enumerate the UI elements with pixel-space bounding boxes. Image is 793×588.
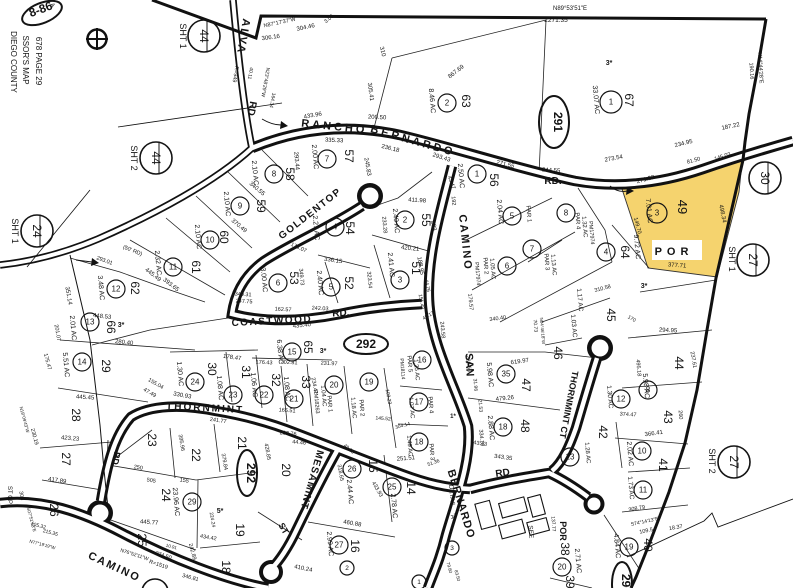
map-label: 351.14 — [63, 286, 72, 306]
map-label: 1.30 AC — [605, 385, 614, 409]
flow-arrow — [262, 119, 281, 125]
map-label: 200.76 — [279, 430, 296, 437]
map-label: 3* — [606, 60, 613, 67]
map-label: (50' RD) — [122, 244, 143, 257]
parcel-circle-number: 7 — [530, 245, 535, 254]
map-label: PAR 1 — [524, 205, 532, 223]
map-label: 44.46 — [292, 439, 306, 446]
map-label: 420.21 — [401, 245, 421, 253]
map-book-oval-number: 291 — [551, 112, 565, 132]
map-label: 395.96 — [177, 434, 186, 452]
map-label: PM17974 — [473, 262, 481, 286]
map-label: 1.03 AC — [569, 314, 578, 338]
sheet-ref-label: SHT 1 — [10, 218, 20, 243]
parcel-circle-number: 3 — [655, 209, 660, 218]
map-label: 2.00 AC — [310, 144, 319, 169]
map-label: 2.10 AC — [222, 191, 231, 216]
sheet-circle-number: 24 — [30, 224, 44, 238]
map-label: 479.26 — [495, 395, 515, 403]
map-label: 417.89 — [48, 477, 68, 486]
map-label: 59 — [254, 199, 268, 213]
sheet-circle-number: 27 — [746, 253, 760, 267]
map-label: 42 — [596, 425, 610, 439]
map-label: 340.40 — [489, 315, 506, 323]
map-label: 273.54 — [604, 154, 624, 164]
map-label: 15 — [366, 459, 380, 473]
margin-text-assessor: SSOR'S MAP — [21, 35, 30, 84]
map-label: 47 — [519, 378, 533, 392]
map-label: 330.93 — [173, 391, 193, 400]
map-label: 251.51 — [397, 455, 416, 463]
map-label: 201.07 — [53, 324, 62, 342]
map-label: 8.46 AC — [427, 88, 436, 113]
map-label: 28 — [69, 408, 83, 422]
map-label: 1.07 AC — [407, 397, 415, 419]
map-label: 1.28 AC — [583, 442, 591, 464]
map-label: 26 — [47, 503, 61, 517]
sheet-circle-cut — [142, 579, 168, 588]
map-label: SEE — [526, 525, 534, 539]
parcel-circle-number: 18 — [415, 438, 424, 447]
map-label: 30 — [205, 362, 219, 376]
map-label: 61 — [189, 260, 203, 274]
culdesac-white-goldentop — [362, 188, 379, 205]
parcel-circle-number: 29 — [188, 498, 197, 507]
map-label: 70.73 — [531, 319, 538, 332]
culdesac-white-rd-east — [588, 498, 601, 511]
map-label: 9.72 AC — [632, 234, 641, 259]
map-label: 3.00 AC — [259, 267, 268, 292]
map-label: 280.40 — [115, 339, 135, 347]
parcel-circle-number: 2 — [445, 99, 450, 108]
map-label: 1.25 AC — [412, 359, 420, 381]
parcel-circle-number: 8 — [272, 170, 277, 179]
map-label: 38 — [558, 542, 572, 556]
map-label: 448.53 — [93, 313, 113, 321]
map-label: 5* — [217, 508, 224, 515]
map-label: 224.24 — [208, 512, 217, 528]
map-label: 1.49 AC — [405, 435, 413, 457]
parcel-circle-number: 6 — [505, 262, 510, 271]
parcel-circle-number: 1 — [475, 170, 480, 179]
map-label: 170 — [626, 314, 636, 323]
parcel-circle-number: 9 — [238, 202, 243, 211]
map-label: PAR 4 — [573, 212, 581, 230]
map-label: 162.57 — [274, 307, 291, 314]
map-label: 241.77 — [209, 417, 226, 425]
map-label: 260 — [677, 410, 684, 420]
map-book-oval-number: 292 — [244, 463, 258, 483]
map-label: N89°53'51"E — [553, 6, 587, 12]
map-label: 57 — [342, 149, 356, 163]
map-label: 250 — [133, 464, 143, 472]
map-label: 393.65 — [162, 277, 181, 293]
map-label: 178.47 — [223, 354, 243, 363]
map-label: 20 — [279, 463, 293, 477]
map-labels: AN87°17'37"W304.463.05306.16N89°53'51"E2… — [6, 2, 764, 588]
parcel-circle-number: 24 — [191, 378, 200, 387]
parcel-circle-number: 1 — [609, 98, 614, 107]
map-label: 379.84 — [220, 453, 229, 471]
map-label: 1.08 AC — [282, 376, 291, 401]
map-label: 46 — [551, 346, 565, 360]
map-label: 60 — [217, 230, 231, 244]
map-label: 336.15 — [324, 257, 344, 266]
parcel-circle-number: 1 — [417, 579, 421, 586]
map-label: 215.35 — [42, 528, 59, 538]
map-label: 2.71 AC — [573, 548, 582, 573]
parcel-circle-number: 8 — [564, 209, 569, 218]
parcel-circle-number: 12 — [617, 395, 626, 404]
map-label: 237.61 — [689, 351, 698, 369]
detail-a-building — [499, 497, 528, 518]
parcel-circle-number: 26 — [348, 465, 357, 474]
map-label: 164.34 — [268, 92, 277, 108]
map-label: 54 — [343, 221, 357, 235]
map-label: 29 — [99, 359, 113, 373]
road-label-rd-east: RD — [495, 467, 511, 480]
parcel-circle-number: 10 — [638, 447, 647, 456]
culdesac-white-thornmint-ct — [592, 340, 609, 357]
map-label: 55 — [419, 213, 433, 227]
map-label: 2.10 AC — [193, 224, 202, 249]
map-label: 1* — [450, 414, 456, 420]
map-label: 64 — [618, 245, 632, 259]
parcel-circle-number: 14 — [78, 358, 87, 367]
map-label: PM18114 — [398, 358, 406, 380]
map-label: 52 — [342, 276, 356, 290]
map-label: 2.01 AC — [68, 315, 77, 340]
map-label: 24 — [159, 488, 173, 502]
parcel-circle-number: 20 — [330, 381, 339, 390]
flow-arrows — [76, 119, 634, 266]
map-label: 63 — [459, 94, 473, 108]
parcel-circle-number: 20 — [558, 563, 567, 572]
parcel-circle-number: 11 — [169, 263, 178, 272]
map-label: 40.11 — [246, 67, 254, 80]
map-label: 31.96 — [471, 378, 478, 391]
map-label: PAR 2 — [357, 399, 365, 417]
map-label: 25 — [135, 533, 149, 547]
map-label: 'A' — [449, 513, 457, 520]
map-label: 66 — [104, 320, 118, 334]
road-label-coastwood-rd: RD. — [332, 308, 350, 320]
map-label: 505 — [146, 477, 156, 485]
culdesac-white-thornmint-w — [92, 505, 109, 522]
map-label: 867.69 — [447, 64, 466, 80]
parcel-circle-number: 25 — [388, 483, 397, 492]
margin-text-page: 678 PAGE 29 — [34, 37, 43, 86]
map-label: 2.40 AC — [391, 208, 400, 233]
parcel-circle-number: 11 — [639, 486, 648, 495]
map-label: 190.16 — [748, 62, 755, 79]
map-label: 65 — [301, 340, 315, 354]
map-label: N19°09'43"W — [19, 406, 31, 434]
road-label-thornmint: THORNMINT — [166, 401, 244, 416]
map-label: 236.18 — [381, 144, 401, 154]
map-label: 304.14 — [395, 421, 412, 431]
map-label: 19 — [233, 523, 247, 537]
detail-a-building — [528, 495, 546, 518]
sheet-circle-number: 27 — [727, 455, 741, 469]
map-label: 23 — [145, 433, 159, 447]
map-label: 145.52 — [375, 415, 391, 422]
culdesac-white-mesamint — [263, 564, 279, 580]
road-label-rancho-rd: RD. — [544, 176, 561, 187]
map-label: PAR 4 — [426, 396, 434, 414]
map-label: 242.03 — [311, 306, 328, 313]
parcel-circle-number: 2 — [403, 216, 408, 225]
map-label: 14 — [404, 481, 418, 495]
map-label: 137.77 — [549, 516, 556, 532]
map-label: 294.95 — [659, 328, 678, 335]
map-label: 192 — [450, 196, 457, 206]
map-label: 56 — [487, 173, 501, 187]
map-label: 2.41 AC — [386, 252, 395, 277]
map-label: 79.80 — [446, 562, 454, 575]
map-label: 428.85 — [263, 443, 272, 461]
sheet-circle-number: 30 — [758, 171, 772, 185]
road-label-camino-san: CAMINO — [456, 214, 474, 272]
map-label: 165.51 — [278, 407, 295, 414]
map-label: 1.05 AC — [488, 258, 496, 280]
map-label: 43.43 — [473, 440, 487, 448]
map-label: 155 — [179, 477, 189, 485]
map-label: 176.43 — [255, 360, 272, 367]
map-label: 202.81 — [280, 360, 297, 367]
map-label: 45 — [604, 308, 618, 322]
map-label: 366.41 — [644, 430, 664, 439]
map-label: 103.23 — [384, 389, 393, 405]
map-label: PAR 2 — [481, 257, 489, 275]
map-label: 3.48 AC — [96, 275, 105, 300]
map-label: 200.50 — [368, 115, 387, 122]
sheet-ref-label: SHT 1 — [727, 246, 737, 271]
map-label: 2.40 AC — [315, 270, 324, 295]
map-label: 423.23 — [61, 435, 80, 443]
map-label: 21.53 — [476, 399, 483, 412]
map-label: 5.51 AC — [61, 352, 70, 377]
sheet-ref-label: SHT 1 — [178, 23, 188, 48]
map-label: 1.08 AC — [215, 375, 224, 400]
map-label: 22 — [189, 448, 203, 462]
map-label: 1.17 AC — [575, 288, 584, 312]
map-label: 32 — [269, 373, 283, 387]
map-label: 5.98 AC — [641, 373, 650, 398]
map-label: 308.79 — [628, 505, 646, 514]
boundary-right — [631, 19, 766, 588]
map-label: PAR 3 — [427, 443, 435, 461]
map-label: POR — [558, 521, 568, 541]
map-label: 411.98 — [408, 197, 427, 204]
map-label: 43 — [661, 410, 675, 424]
map-label: 434.42 — [199, 534, 217, 543]
parcel-circle-number: 35 — [502, 370, 511, 379]
map-label: 343.35 — [494, 454, 514, 463]
map-label: 179.57 — [466, 293, 473, 310]
sheet-circle-number: 44 — [197, 29, 211, 43]
map-label: 1.06 AC — [249, 372, 258, 397]
map-label: 81.50 — [686, 156, 701, 165]
assessor-map-page: POR DIEGO COUNTY SSOR'S MAP 678 PAGE 29 … — [0, 0, 793, 588]
road-white-thornmint-e — [470, 473, 588, 497]
map-label: 2.04 AC — [495, 199, 504, 224]
map-label: 310 — [378, 46, 387, 58]
map-label: 1.04 AC — [319, 385, 327, 407]
map-label: 67 — [622, 93, 636, 107]
map-label: 247.75 — [235, 299, 252, 306]
map-label: 51 — [409, 261, 423, 275]
sheet-circle-number: 44 — [149, 151, 163, 165]
map-label: 2.99 AC — [325, 531, 334, 556]
parcel-circle-number: 7 — [325, 155, 330, 164]
map-label: 349.31 — [234, 292, 251, 299]
map-label: 2.44 AC — [345, 479, 354, 504]
parcel-circle-number: 10 — [206, 236, 215, 245]
parcel-circle-number: 22 — [260, 391, 269, 400]
map-label: 1.32 AC — [580, 216, 588, 238]
map-label: 619.97 — [510, 358, 530, 367]
parcel-circle-number: 27 — [335, 541, 344, 550]
detail-a-building — [475, 500, 496, 529]
map-label: 49 — [675, 200, 690, 214]
detail-a-building — [499, 519, 526, 539]
parcel-circle-number: 4 — [333, 223, 338, 232]
map-label: 3* — [320, 348, 327, 355]
map-label: 460.88 — [343, 519, 363, 528]
parcel-circle-number: 5 — [510, 212, 515, 221]
parcel-circle-number: 19 — [365, 378, 374, 387]
map-label: 231.97 — [320, 361, 337, 368]
parcel-circle-number: 3 — [398, 276, 403, 285]
map-label: 16 — [348, 539, 362, 553]
map-label: 44 — [672, 356, 686, 370]
map-label: 335.33 — [325, 138, 344, 145]
map-label: 48 — [518, 419, 532, 433]
parcel-circle-number: 17 — [415, 398, 424, 407]
map-label: 293.01 — [95, 255, 113, 266]
parcel-circle-number: 2 — [345, 565, 349, 572]
map-label: 1.30 AC — [175, 361, 184, 386]
parcel-circle-number: 6 — [276, 279, 281, 288]
map-label: 83.50 — [454, 570, 462, 583]
map-label: 306.16 — [261, 34, 281, 43]
map-label: 234.95 — [674, 139, 694, 149]
map-label: PAR 3 — [542, 253, 550, 271]
map-label: 433.93 — [370, 481, 384, 499]
map-label: N23°48'29"W — [259, 67, 270, 98]
map-label: 2.02 AC — [625, 441, 634, 466]
map-label: PM18263 — [312, 390, 320, 414]
flow-arrow-head — [280, 121, 288, 129]
map-label: PM17974 — [587, 221, 595, 245]
map-label: 370.49 — [230, 218, 248, 235]
map-label: 2.50 AC — [456, 163, 465, 188]
map-label: 40 — [641, 538, 655, 552]
map-label: 3* — [641, 283, 648, 290]
map-label: 41 — [656, 458, 670, 472]
parcel-circle-number: 3 — [450, 545, 454, 552]
map-label: 445.77 — [140, 519, 159, 527]
map-label: N04°46'18"W — [539, 317, 546, 345]
map-label: 233.28 — [380, 216, 387, 233]
map-book-oval-number: 290 — [619, 574, 633, 588]
map-label: 245.83 — [362, 157, 371, 177]
map-label: 39 — [563, 575, 577, 588]
map-label: S07°51'13"E — [26, 507, 37, 533]
map-label: 410.24 — [294, 564, 314, 574]
map-label: 304.46 — [296, 23, 316, 33]
map-label: 346.81 — [181, 573, 199, 583]
map-label: N87°17'37"W — [263, 17, 297, 30]
map-label: N77°19'19"W — [29, 539, 57, 551]
map-label: 305.41 — [366, 82, 375, 102]
map-label: 1.13 AC — [549, 254, 557, 276]
map-label: 2.88 AC — [486, 415, 495, 440]
parcel-circle-number: 5 — [329, 283, 334, 292]
map-label: DETAIL — [447, 484, 456, 507]
map-label: 21 — [235, 436, 249, 450]
map-label: 4.84 AC — [612, 533, 621, 558]
sheet-ref-label: SHT 2 — [129, 145, 139, 170]
parcel-circle-number: 18 — [499, 423, 508, 432]
map-label: 310.58 — [594, 284, 612, 294]
por-label: POR — [655, 246, 694, 258]
map-label: 18.37 — [669, 524, 684, 532]
map-label: ST OP — [6, 486, 12, 504]
parcel-circle-number: 19 — [625, 543, 634, 552]
parcel-circle-number: 13 — [566, 453, 575, 462]
assessor-map: POR DIEGO COUNTY SSOR'S MAP 678 PAGE 29 … — [0, 0, 793, 588]
map-label: 33.07 AC — [591, 85, 600, 114]
map-label: R=1519 — [148, 559, 168, 571]
parcel-circle-number: 4 — [604, 248, 609, 257]
map-label: 2271.35 — [544, 17, 568, 24]
map-label: 2.78 AC — [389, 493, 398, 518]
map-label: 18 — [219, 560, 233, 574]
map-label: 5.98 AC — [485, 362, 494, 387]
map-label: 495.18 — [634, 359, 641, 376]
map-book-oval-number: 292 — [356, 337, 376, 351]
sheet-ref-label: SHT 2 — [707, 448, 717, 473]
map-label: 3* — [118, 322, 125, 329]
map-label: 445.45 — [76, 394, 95, 401]
parcel-circle-number: 23 — [229, 391, 238, 400]
map-label: 323.54 — [365, 271, 372, 288]
parcel-circle-number: 12 — [112, 285, 121, 294]
map-label: 47.49 — [142, 387, 157, 399]
map-label: 374.47 — [619, 412, 636, 419]
map-label: N14°44'28"E — [756, 52, 764, 84]
map-label: 175.47 — [42, 353, 52, 371]
map-label: 58 — [283, 167, 297, 181]
detail-a-buildings — [475, 495, 550, 539]
margin-text-county: DIEGO COUNTY — [9, 31, 18, 93]
map-label: 62 — [128, 281, 142, 295]
map-label: 1.73 AC — [626, 476, 635, 500]
map-label: 27 — [59, 452, 73, 466]
parcel-circle-number: 15 — [288, 348, 297, 357]
map-label: PAR 5 — [405, 355, 413, 373]
map-label: 187.22 — [721, 122, 741, 132]
benchmark-icon — [86, 28, 108, 50]
map-label: 23.96 AC — [171, 487, 180, 516]
